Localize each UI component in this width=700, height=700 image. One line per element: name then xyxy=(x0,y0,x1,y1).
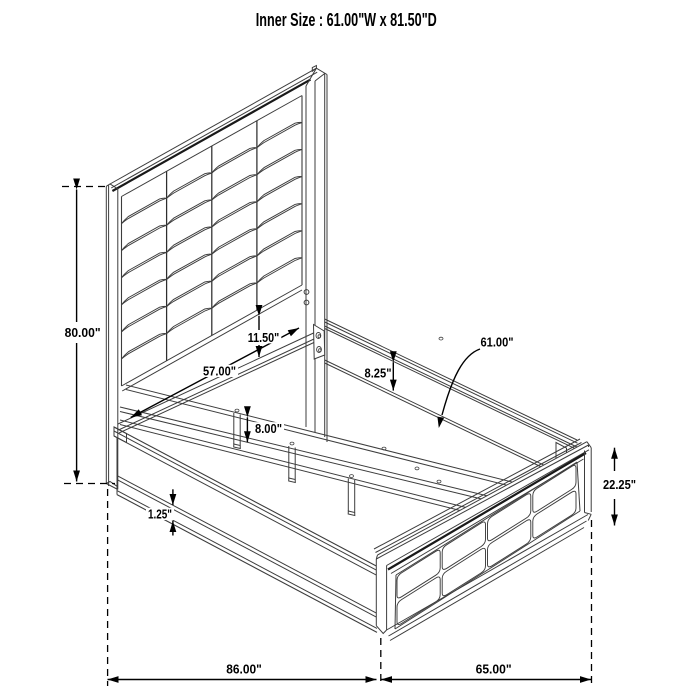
svg-text:61.00": 61.00" xyxy=(481,335,514,350)
svg-text:8.00": 8.00" xyxy=(255,421,282,436)
svg-text:65.00": 65.00" xyxy=(476,662,512,677)
svg-text:Inner Size : 61.00"W x 81.50"D: Inner Size : 61.00"W x 81.50"D xyxy=(256,9,437,30)
svg-text:11.50": 11.50" xyxy=(248,330,280,345)
svg-text:86.00": 86.00" xyxy=(226,662,262,677)
svg-text:22.25": 22.25" xyxy=(603,477,636,492)
svg-text:8.25": 8.25" xyxy=(365,366,392,381)
svg-text:1.25": 1.25" xyxy=(148,507,172,522)
svg-text:80.00": 80.00" xyxy=(65,325,101,340)
svg-text:57.00": 57.00" xyxy=(203,364,236,379)
